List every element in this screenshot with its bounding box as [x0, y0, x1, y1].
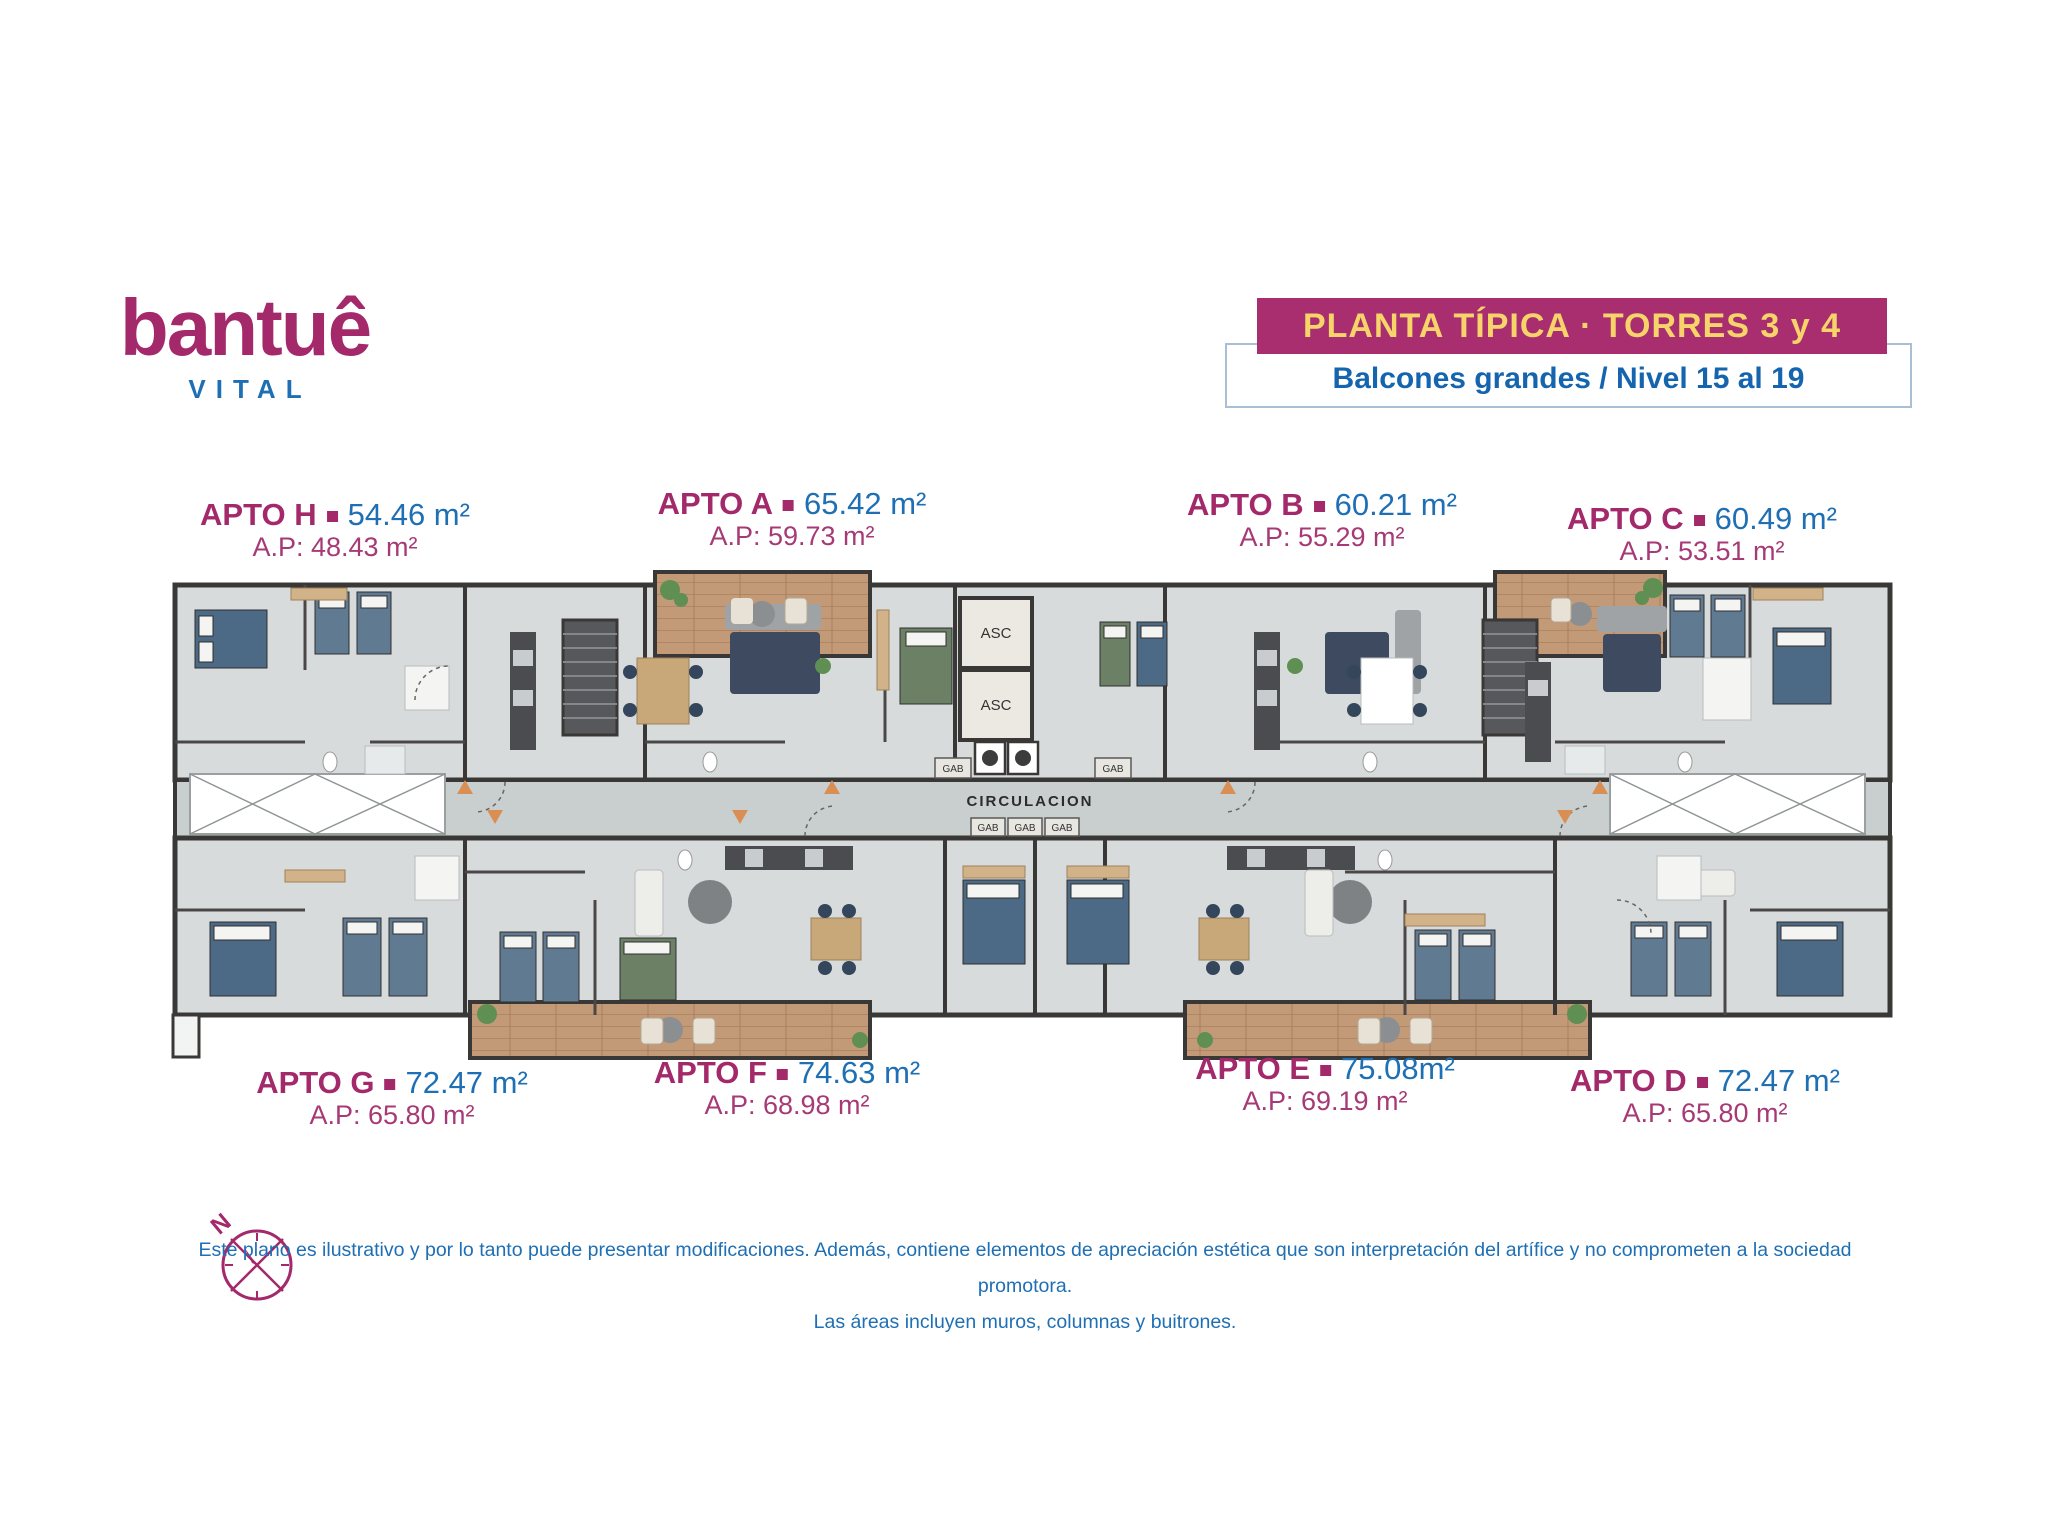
apto-d-area: 72.47 m² [1718, 1063, 1840, 1098]
disclaimer: Este plano es ilustrativo y por lo tanto… [160, 1232, 1890, 1340]
title-banner: PLANTA TÍPICA · TORRES 3 y 4 [1257, 298, 1887, 354]
apto-g-area: 72.47 m² [405, 1065, 527, 1100]
apto-d-private-area: A.P: 65.80 m² [1570, 1098, 1840, 1128]
square-bullet-icon [1314, 501, 1325, 512]
apto-a-name: APTO A [658, 486, 773, 521]
square-bullet-icon [384, 1079, 395, 1090]
apto-a-area: 65.42 m² [804, 486, 926, 521]
apto-h-label: APTO H54.46 m² A.P: 48.43 m² [200, 498, 470, 562]
apto-c-name: APTO C [1567, 501, 1684, 536]
apto-h-area: 54.46 m² [348, 497, 470, 532]
closet-label: GAB [977, 823, 998, 834]
apto-f-label: APTO F74.63 m² A.P: 68.98 m² [654, 1056, 920, 1120]
corridor-label: CIRCULACION [967, 793, 1094, 810]
brand-tagline: VITAL [95, 374, 395, 405]
apto-f-area: 74.63 m² [798, 1055, 920, 1090]
closet-label: GAB [1102, 764, 1123, 775]
brand-logo: bantuê VITAL [95, 288, 395, 405]
square-bullet-icon [1697, 1077, 1708, 1088]
disclaimer-line-1: Este plano es ilustrativo y por lo tanto… [160, 1232, 1890, 1304]
closet-label: GAB [942, 764, 963, 775]
square-bullet-icon [327, 511, 338, 522]
apto-g-name: APTO G [256, 1065, 374, 1100]
floor-plan: ASC ASC GAB GAB GAB GAB GAB CIRCULACION [165, 570, 1895, 1062]
elevator-label: ASC [981, 697, 1012, 714]
apto-f-name: APTO F [654, 1055, 767, 1090]
apto-b-area: 60.21 m² [1335, 487, 1457, 522]
apto-e-name: APTO E [1195, 1051, 1310, 1086]
apto-c-label: APTO C60.49 m² A.P: 53.51 m² [1567, 502, 1837, 566]
title-banner-text: PLANTA TÍPICA · TORRES 3 y 4 [1303, 307, 1841, 346]
apto-b-private-area: A.P: 55.29 m² [1187, 522, 1457, 552]
closet-label: GAB [1051, 823, 1072, 834]
brochure-page: { "logo": { "name": "bantuê", "tagline":… [0, 0, 2048, 1536]
square-bullet-icon [1694, 515, 1705, 526]
square-bullet-icon [783, 500, 794, 511]
apto-g-label: APTO G72.47 m² A.P: 65.80 m² [256, 1066, 528, 1130]
subtitle-text: Balcones grandes / Nivel 15 al 19 [1225, 362, 1912, 396]
apto-c-private-area: A.P: 53.51 m² [1567, 536, 1837, 566]
square-bullet-icon [777, 1069, 788, 1080]
apto-b-name: APTO B [1187, 487, 1304, 522]
apto-d-label: APTO D72.47 m² A.P: 65.80 m² [1570, 1064, 1840, 1128]
apto-d-name: APTO D [1570, 1063, 1687, 1098]
apto-e-private-area: A.P: 69.19 m² [1195, 1086, 1455, 1116]
apto-g-private-area: A.P: 65.80 m² [256, 1100, 528, 1130]
apto-b-label: APTO B60.21 m² A.P: 55.29 m² [1187, 488, 1457, 552]
apto-e-area: 75.08m² [1341, 1051, 1455, 1086]
apto-h-name: APTO H [200, 497, 317, 532]
elevator-label: ASC [981, 625, 1012, 642]
apto-h-private-area: A.P: 48.43 m² [200, 532, 470, 562]
closet-label: GAB [1014, 823, 1035, 834]
brand-name: bantuê [95, 288, 395, 368]
apto-f-private-area: A.P: 68.98 m² [654, 1090, 920, 1120]
apto-a-label: APTO A65.42 m² A.P: 59.73 m² [658, 487, 927, 551]
apto-c-area: 60.49 m² [1715, 501, 1837, 536]
square-bullet-icon [1320, 1065, 1331, 1076]
apto-e-label: APTO E75.08m² A.P: 69.19 m² [1195, 1052, 1455, 1116]
disclaimer-line-2: Las áreas incluyen muros, columnas y bui… [160, 1304, 1890, 1340]
apto-a-private-area: A.P: 59.73 m² [658, 521, 927, 551]
